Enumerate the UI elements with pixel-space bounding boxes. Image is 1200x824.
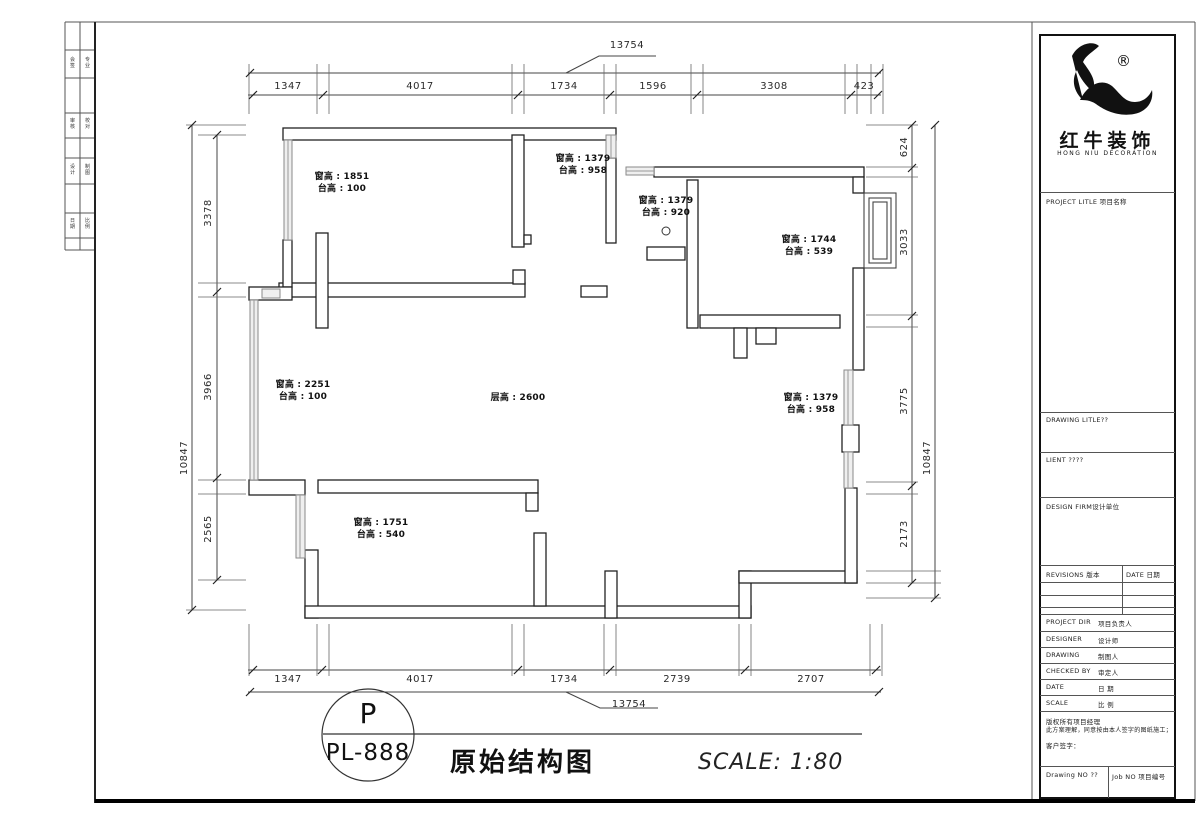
- dim-bottom-seg: 1734: [534, 674, 594, 686]
- walls: [249, 128, 864, 618]
- strip-cell: 设计: [69, 165, 76, 176]
- dim-left-seg: 3378: [203, 183, 215, 243]
- room-annotation: 窗高 : 1379台高 : 958: [780, 392, 842, 416]
- designer-label: DESIGNER: [1046, 635, 1082, 643]
- dim-top-seg: 1734: [534, 81, 594, 93]
- titleblock-divider: [1108, 766, 1109, 798]
- title-bubble-letter: P: [344, 697, 392, 730]
- strip-cell: 校对: [84, 119, 91, 130]
- dim-bottom-seg: 2707: [781, 674, 841, 686]
- project-dir-cn: 项目负责人: [1098, 618, 1132, 628]
- date-cn: 日 期: [1098, 683, 1114, 693]
- windows: [250, 135, 853, 558]
- titleblock-line: [1040, 565, 1175, 566]
- titleblock-line: [1040, 679, 1175, 680]
- strip-cell: 比例: [84, 219, 91, 230]
- titleblock-line: [1040, 497, 1175, 498]
- dim-top-seg: 1347: [258, 81, 318, 93]
- dim-top-seg: 1596: [623, 81, 683, 93]
- room-annotation: 窗高 : 1744台高 : 539: [778, 234, 840, 258]
- titleblock-line: [1040, 711, 1175, 712]
- drawing-number: PL-888: [320, 740, 416, 766]
- drawing-title: 原始结构图: [450, 742, 595, 779]
- room-annotation: 窗高 : 2251台高 : 100: [272, 379, 334, 403]
- titleblock-line: [1040, 595, 1175, 596]
- titleblock-line: [1040, 607, 1175, 608]
- dim-bottom-seg: 1347: [258, 674, 318, 686]
- dim-left-overall: 10847: [179, 428, 191, 488]
- job-no-label: Job NO 项目编号: [1112, 771, 1165, 781]
- dim-bottom-overall: 13754: [599, 699, 659, 711]
- titleblock-line: [1040, 412, 1175, 413]
- dim-right-seg: 624: [899, 117, 911, 177]
- strip-cell: 制图: [84, 165, 91, 176]
- customer-sign-label: 客户签字：: [1046, 740, 1080, 750]
- brand-logo-icon: [1072, 43, 1152, 114]
- checked-by-cn: 审定人: [1098, 667, 1118, 677]
- brand-name-en: HONG NIU DECORATION: [1042, 150, 1173, 157]
- titleblock-line: [1040, 663, 1175, 664]
- dim-top-seg: 3308: [744, 81, 804, 93]
- date-col-label: DATE 日期: [1126, 569, 1160, 579]
- sheet-frame: [65, 22, 1195, 801]
- scale-row-label: SCALE: [1046, 699, 1068, 707]
- titleblock-line: [1040, 695, 1175, 696]
- scale-row-cn: 比 例: [1098, 699, 1114, 709]
- date-label: DATE: [1046, 683, 1064, 691]
- room-annotation: 窗高 : 1851台高 : 100: [313, 171, 371, 195]
- strip-cell: 日期: [69, 219, 76, 230]
- titleblock-line: [1040, 614, 1175, 615]
- dim-top-seg: 4017: [390, 81, 450, 93]
- dim-right-overall: 10847: [922, 428, 934, 488]
- dim-right-seg: 3775: [899, 371, 911, 431]
- bay-window: [864, 193, 896, 268]
- scale-label: SCALE: 1:80: [698, 750, 843, 775]
- titleblock-divider: [1122, 565, 1123, 614]
- strip-cell: 专业: [84, 58, 91, 69]
- design-firm-label: DESIGN FIRM设计单位: [1046, 501, 1119, 511]
- project-dir-label: PROJECT DIR: [1046, 618, 1091, 626]
- titleblock-line: [1040, 452, 1175, 453]
- titleblock-line: [1040, 631, 1175, 632]
- dim-right-seg: 2173: [899, 504, 911, 564]
- dim-bottom-seg: 2739: [647, 674, 707, 686]
- dim-top-overall: 13754: [597, 40, 657, 52]
- strip-cell: 审核: [69, 119, 76, 130]
- titleblock-line: [1040, 192, 1175, 193]
- dim-left-seg: 2565: [203, 499, 215, 559]
- project-title-label: PROJECT LITLE 项目名称: [1046, 196, 1127, 206]
- dim-right-seg: 3033: [899, 212, 911, 272]
- drawing-title-label: DRAWING LITLE??: [1046, 416, 1108, 424]
- titleblock-line: [1040, 582, 1175, 583]
- drawing-sheet: 会签 专业 审核 校对 设计 制图 日期 比例 13754 1347 4017 …: [0, 0, 1200, 824]
- client-label: LIENT ????: [1046, 456, 1083, 464]
- checked-by-label: CHECKED BY: [1046, 667, 1091, 675]
- drawing-by-cn: 制图人: [1098, 651, 1118, 661]
- room-annotation: 窗高 : 1379台高 : 920: [635, 195, 697, 219]
- dim-top-seg: 423: [834, 81, 894, 93]
- copyright-line2: 此方案理解，同意按由本人签字的图纸施工；: [1046, 725, 1172, 734]
- dim-bottom-seg: 4017: [390, 674, 450, 686]
- strip-cell: 会签: [69, 58, 76, 69]
- drawing-no-label: Drawing NO ??: [1046, 771, 1098, 779]
- room-annotation: 窗高 : 1379台高 : 958: [552, 153, 614, 177]
- registered-mark: ®: [1116, 52, 1131, 70]
- dim-left-seg: 3966: [203, 357, 215, 417]
- brand-name-cn: 红牛装饰: [1042, 126, 1173, 153]
- circle-symbol: [662, 227, 670, 235]
- designer-cn: 设计师: [1098, 635, 1118, 645]
- revisions-label: REVISIONS 版本: [1046, 569, 1100, 579]
- ceiling-height-annotation: 层高 : 2600: [488, 392, 548, 404]
- drawing-by-label: DRAWING: [1046, 651, 1080, 659]
- room-annotation: 窗高 : 1751台高 : 540: [350, 517, 412, 541]
- titleblock-line: [1040, 647, 1175, 648]
